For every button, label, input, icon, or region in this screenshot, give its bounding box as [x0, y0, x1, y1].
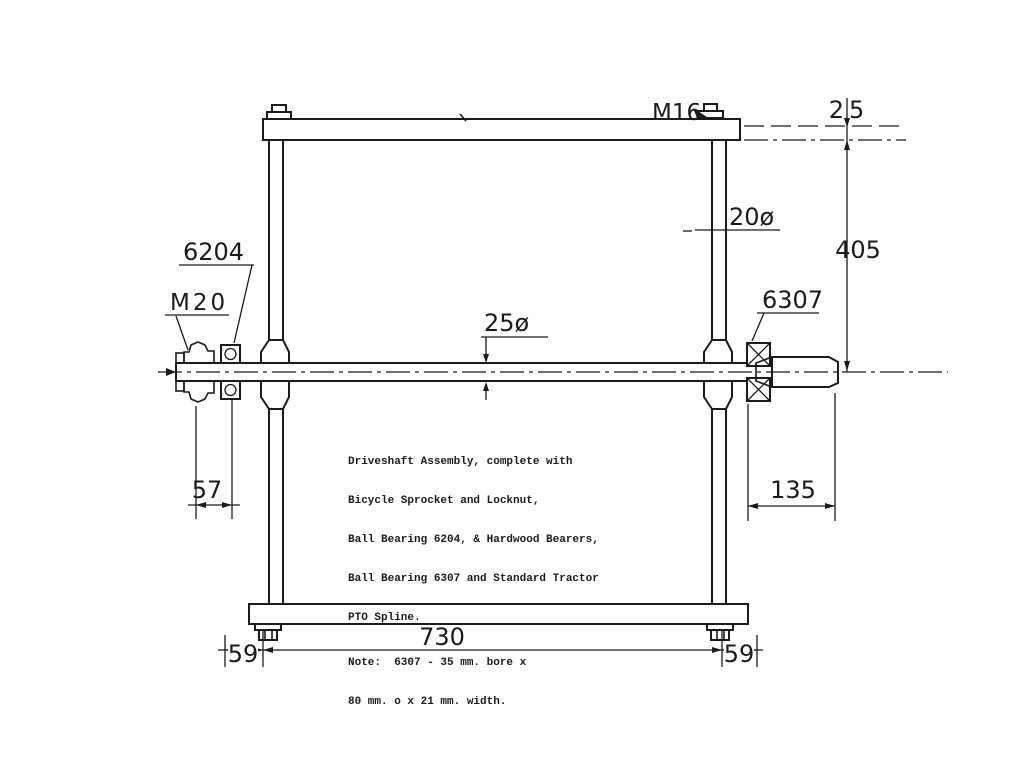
label-dim57: 57	[192, 476, 223, 504]
description-line: Ball Bearing 6307 and Standard Tractor	[348, 573, 599, 586]
label-m16: M16	[652, 100, 701, 126]
description-line: Ball Bearing 6204, & Hardwood Bearers,	[348, 534, 599, 547]
bottom-left-bolt	[255, 624, 281, 640]
centerlines	[158, 126, 948, 376]
label-dia25: 25ø	[484, 309, 529, 337]
label-m20: M20	[170, 290, 228, 316]
label-bearing-6307: 6307	[762, 286, 823, 314]
description-line: Bicycle Sprocket and Locknut,	[348, 495, 599, 508]
label-dim135: 135	[770, 476, 816, 504]
label-dim25-top: 25	[829, 96, 870, 124]
description-line: Driveshaft Assembly, complete with	[348, 456, 599, 469]
description-block: Driveshaft Assembly, complete with Bicyc…	[348, 430, 599, 735]
shaft-end-arrow	[166, 368, 176, 376]
label-dim59-left: 59	[228, 640, 259, 668]
note-line: 80 mm. o x 21 mm. width.	[348, 696, 599, 709]
label-bearing-6204: 6204	[183, 238, 244, 266]
label-dim59-right: 59	[724, 640, 755, 668]
m20-leader	[165, 315, 229, 350]
bearing-6307-leader	[752, 313, 819, 341]
label-dia20: 20ø	[729, 203, 774, 231]
bottom-right-bolt	[707, 624, 733, 640]
technical-drawing-page: M16 25 20ø 405 6204 M20 25ø 6307 57 135 …	[0, 0, 1024, 768]
label-dim405: 405	[835, 236, 881, 264]
dim-405-line	[844, 98, 850, 372]
description-line: PTO Spline.	[348, 612, 599, 625]
top-left-bolt	[267, 105, 291, 119]
note-line: Note: 6307 - 35 mm. bore x	[348, 657, 599, 670]
